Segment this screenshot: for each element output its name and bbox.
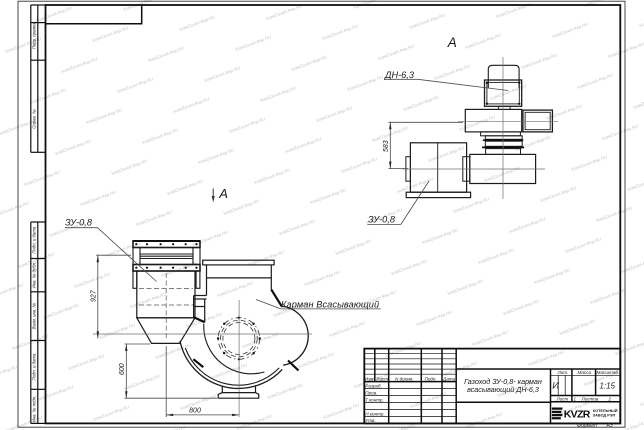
svg-text:Инв. № дубл.: Инв. № дубл.: [32, 262, 37, 288]
svg-text:А: А: [447, 35, 457, 50]
svg-text:ЗУ-0,8: ЗУ-0,8: [65, 218, 93, 228]
svg-text:1:15: 1:15: [599, 381, 615, 390]
svg-text:ЗУ-0,8: ЗУ-0,8: [368, 215, 396, 225]
svg-text:2: 2: [608, 397, 612, 402]
svg-text:Подп. и дата: Подп. и дата: [32, 353, 37, 381]
svg-text:всасывающий ДН-6,3: всасывающий ДН-6,3: [467, 385, 539, 394]
svg-text:Масштаб: Масштаб: [597, 370, 619, 375]
svg-text:Подп.: Подп.: [425, 376, 437, 381]
svg-text:Масса: Масса: [578, 370, 592, 375]
svg-text:Лит.: Лит.: [557, 370, 569, 375]
svg-text:1: 1: [574, 397, 577, 402]
svg-text:ЗАВОД РЭП: ЗАВОД РЭП: [593, 414, 616, 418]
svg-text:А3: А3: [606, 423, 613, 429]
svg-text:Пров.: Пров.: [365, 390, 377, 395]
svg-text:Перв. примен.: Перв. примен.: [32, 21, 37, 50]
svg-text:Подп. и дата: Подп. и дата: [32, 226, 37, 254]
svg-text:583: 583: [383, 140, 390, 152]
svg-text:Инв. № подл.: Инв. № подл.: [32, 396, 37, 423]
svg-text:Взам. инв. №: Взам. инв. №: [32, 302, 37, 329]
svg-text:ДН-6,3: ДН-6,3: [384, 70, 415, 80]
svg-text:Н.контр.: Н.контр.: [365, 411, 384, 416]
svg-text:КОТЕЛЬНЫЙ: КОТЕЛЬНЫЙ: [593, 409, 618, 413]
svg-text:KVZR: KVZR: [564, 408, 591, 420]
svg-text:Разраб.: Разраб.: [365, 384, 382, 389]
svg-text:А: А: [218, 186, 228, 201]
svg-text:Дата: Дата: [442, 376, 456, 381]
svg-text:800: 800: [189, 408, 201, 415]
svg-text:Т.контр.: Т.контр.: [365, 397, 384, 402]
svg-text:Лист: Лист: [556, 397, 569, 402]
svg-text:Листов: Листов: [581, 397, 599, 402]
svg-text:600: 600: [119, 363, 126, 375]
svg-text:Утв.: Утв.: [365, 418, 375, 423]
svg-text:И: И: [552, 381, 559, 392]
svg-text:Изм: Изм: [365, 376, 374, 381]
svg-text:N докум.: N докум.: [395, 376, 414, 381]
svg-text:Формат: Формат: [577, 423, 597, 429]
svg-text:Лист: Лист: [375, 376, 388, 381]
svg-text:Карман Всасывающий: Карман Всасывающий: [281, 299, 379, 309]
svg-text:Справ. №: Справ. №: [32, 109, 37, 129]
svg-text:927: 927: [91, 289, 98, 302]
